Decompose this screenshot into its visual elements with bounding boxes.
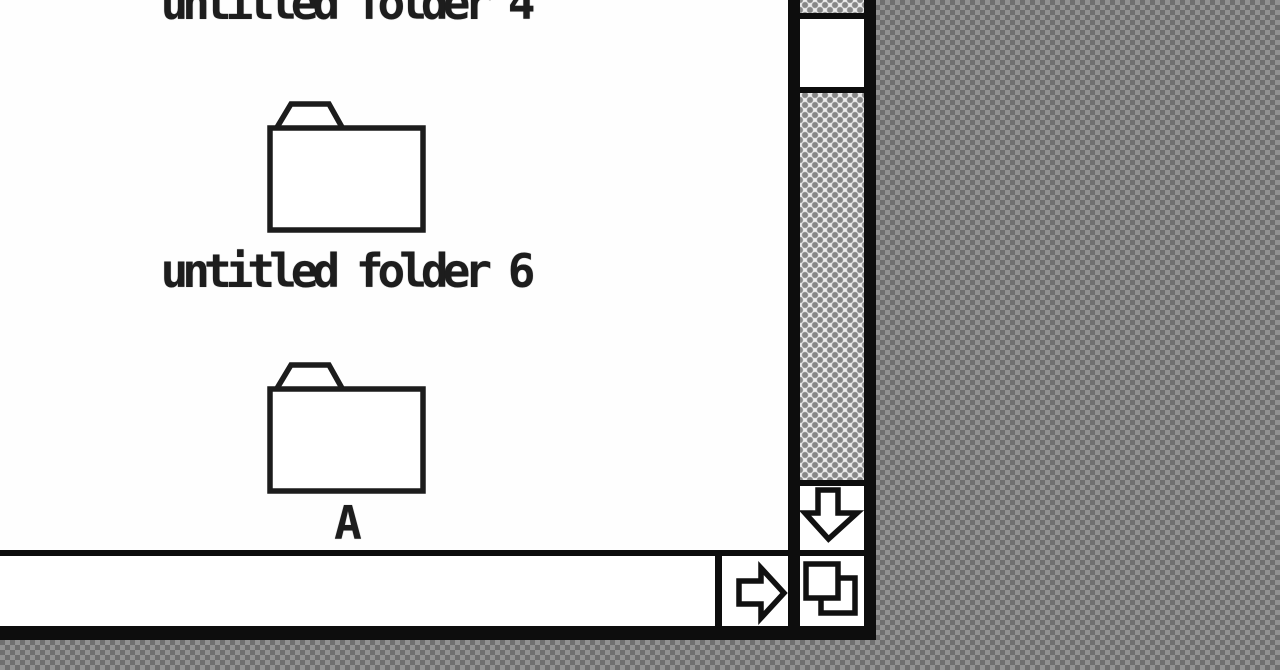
folder-label[interactable]: untitled folder 4 <box>0 0 690 26</box>
scrollbar-left-frame <box>788 0 800 640</box>
grow-box-icon <box>800 556 864 626</box>
scroll-down-button[interactable] <box>800 480 864 550</box>
arrow-down-icon <box>800 486 864 550</box>
grow-box[interactable] <box>800 556 864 626</box>
folder-label[interactable]: A <box>0 500 690 546</box>
horizontal-scrollbar-divider <box>715 556 722 626</box>
finder-window: untitled folder 4 untitled folder 6 A <box>0 0 876 640</box>
vertical-scrollbar-thumb[interactable] <box>794 13 870 93</box>
arrow-right-icon <box>722 556 788 626</box>
scroll-right-button[interactable] <box>722 556 788 626</box>
folder-icon[interactable] <box>266 361 430 495</box>
folder-label[interactable]: untitled folder 6 <box>0 248 690 294</box>
window-bottom-frame <box>0 626 876 640</box>
finder-icon-view: untitled folder 4 untitled folder 6 A <box>0 0 788 550</box>
desktop: untitled folder 4 untitled folder 6 A <box>0 0 1280 670</box>
folder-icon[interactable] <box>266 100 430 234</box>
horizontal-scrollbar-track[interactable] <box>0 556 715 626</box>
window-right-frame <box>864 0 876 640</box>
